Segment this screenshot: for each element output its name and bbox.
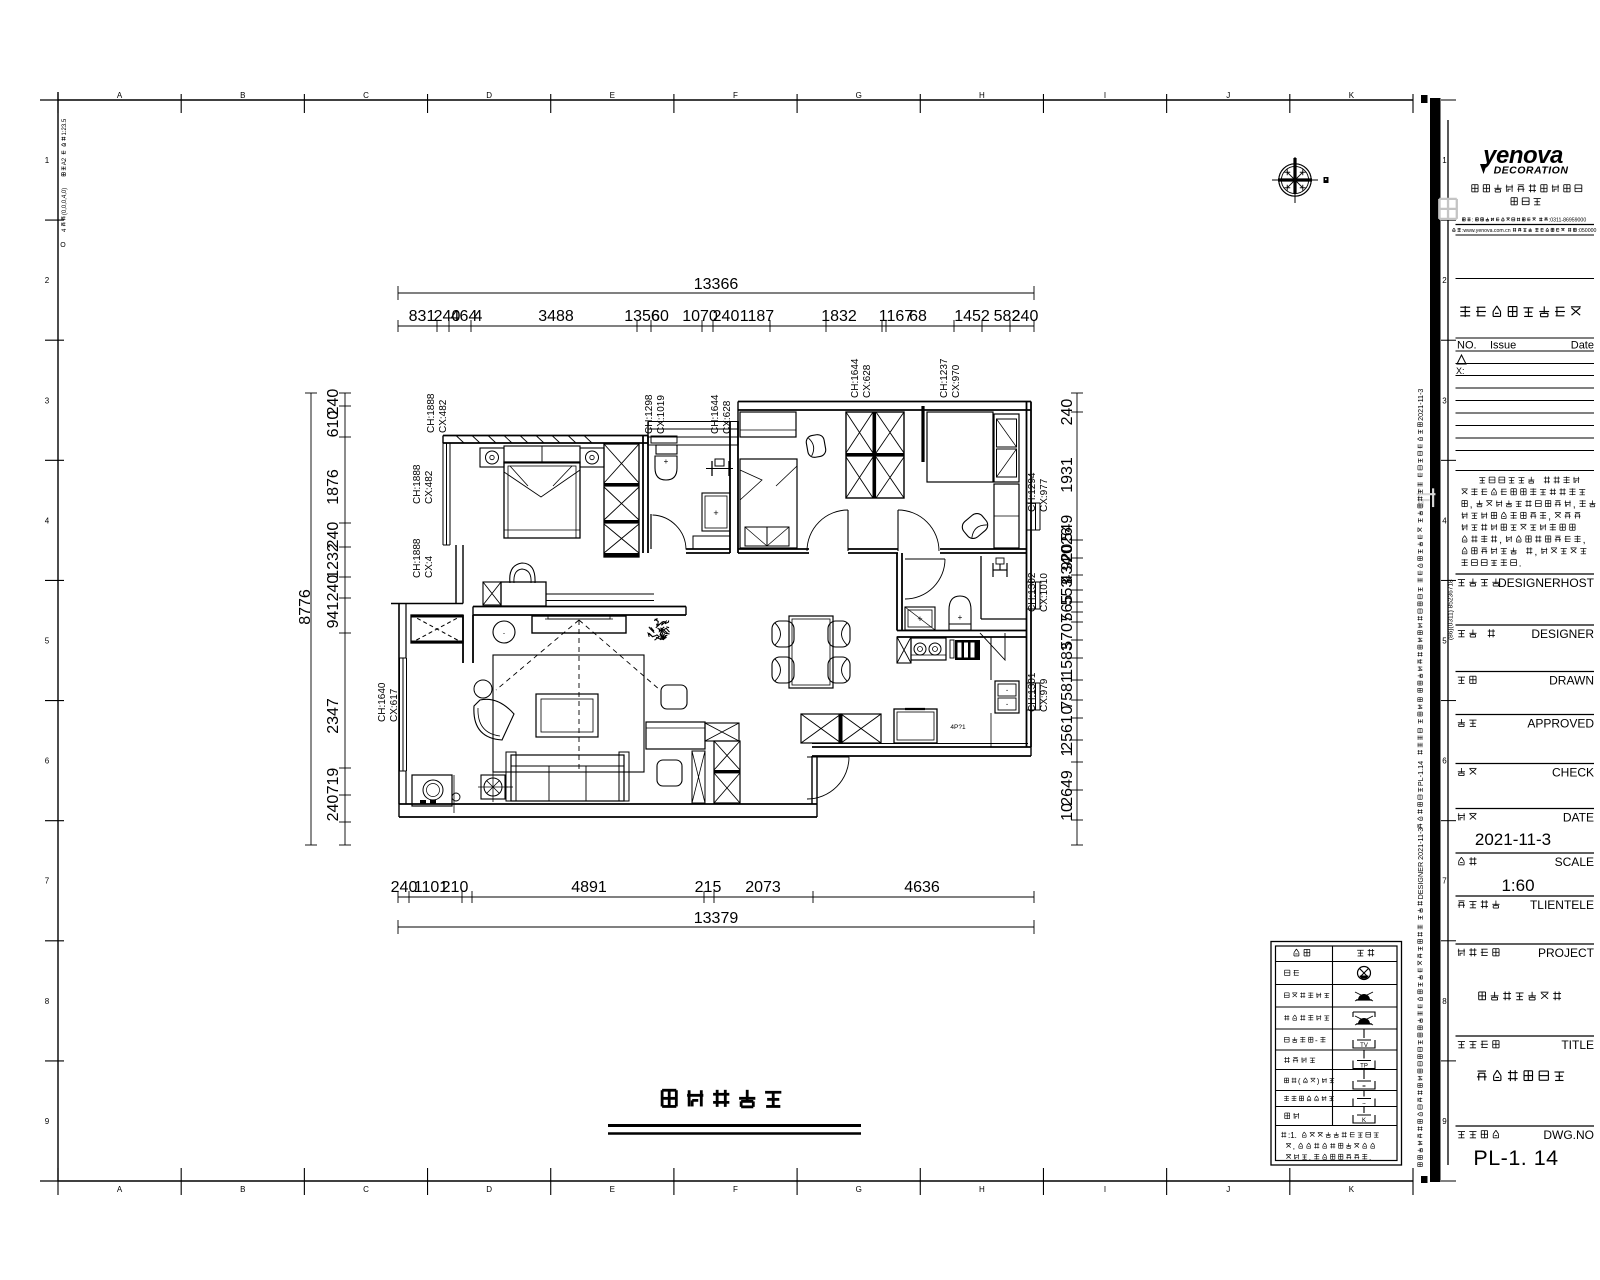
svg-text:TITLE: TITLE [1561,1038,1594,1052]
svg-text:CX:617: CX:617 [389,688,400,722]
svg-text:.: . [1519,559,1522,570]
svg-text:DESIGNERHOST: DESIGNERHOST [1498,576,1595,590]
svg-text:,: , [1548,511,1551,522]
svg-text:4P?1: 4P?1 [950,724,966,731]
svg-text:CH:1888: CH:1888 [412,464,423,504]
svg-text:13366: 13366 [694,276,739,293]
svg-text:DECORATION: DECORATION [1494,165,1569,177]
svg-text:7: 7 [45,877,50,886]
svg-text:240: 240 [1059,399,1076,426]
svg-text:DESIGNER: DESIGNER [1531,627,1594,641]
svg-text::www.yenova.com.cn: :www.yenova.com.cn [1462,228,1511,234]
svg-text:CX:970: CX:970 [951,364,962,398]
svg-text::1.: :1. [1288,1131,1297,1140]
svg-text:3488: 3488 [538,308,574,325]
svg-text:SCALE: SCALE [1555,855,1594,869]
svg-text:K: K [1349,1185,1355,1194]
svg-text:2649: 2649 [1059,770,1076,806]
svg-text:DATE: DATE [1563,811,1594,825]
svg-text:1452: 1452 [954,308,990,325]
svg-text:+: + [713,508,718,518]
svg-text:DWG.NO: DWG.NO [1543,1128,1594,1142]
svg-text:D: D [486,1185,492,1194]
svg-text:240: 240 [1012,308,1039,325]
svg-text:·: · [1005,685,1008,696]
svg-text:8: 8 [45,997,50,1006]
svg-text:J: J [1226,91,1230,100]
svg-text:-: - [1315,1036,1318,1045]
svg-text:1: 1 [45,156,50,165]
svg-text:CX:977: CX:977 [1039,478,1050,512]
svg-text:831: 831 [409,308,436,325]
svg-text:1583: 1583 [1059,642,1076,678]
svg-text:·: · [503,628,506,638]
svg-text:4: 4 [474,308,483,325]
svg-text:7581: 7581 [1059,674,1076,710]
svg-text:O: O [60,242,66,249]
svg-text:CH:1644: CH:1644 [710,394,721,434]
svg-text:X:: X: [1456,366,1465,376]
svg-text:PROJECT: PROJECT [1538,946,1595,960]
svg-text:C: C [363,1185,369,1194]
svg-text:1931: 1931 [1059,457,1076,493]
svg-text:,: , [1470,500,1473,511]
svg-text:2347: 2347 [325,698,342,734]
svg-text:4636: 4636 [904,879,940,896]
svg-text::: : [1472,218,1473,224]
svg-text:A: A [117,91,123,100]
svg-text:CH:1888: CH:1888 [412,538,423,578]
svg-text:8: 8 [1442,997,1447,1006]
svg-text:NO.: NO. [1457,340,1477,352]
svg-text:6: 6 [1442,757,1447,766]
svg-text:+: + [664,457,669,466]
svg-text:,: , [1309,1153,1311,1162]
svg-text:8776: 8776 [297,589,314,625]
svg-text:4: 4 [45,516,50,525]
svg-text:G: G [856,91,862,100]
svg-text::050000: :050000 [1578,228,1597,234]
svg-text:240: 240 [713,308,740,325]
svg-text:F: F [733,1185,738,1194]
svg-text:·: · [1005,699,1008,710]
svg-text:A2: A2 [62,157,68,165]
svg-text:9: 9 [45,1117,50,1126]
svg-text:CX:4: CX:4 [424,555,435,578]
svg-text:DRAWN: DRAWN [1549,674,1594,688]
svg-text:68: 68 [909,308,927,325]
svg-text:210: 210 [442,879,469,896]
svg-text:A: A [117,1185,123,1194]
svg-text:CH:1294: CH:1294 [1027,472,1038,512]
svg-text:(0,0,0,4,0): (0,0,0,4,0) [62,188,68,215]
svg-text:.: . [1369,1153,1371,1162]
svg-text:240: 240 [325,795,342,822]
svg-text:CX:628: CX:628 [862,364,873,398]
svg-text:2073: 2073 [745,879,781,896]
svg-text:PL-1. 14: PL-1. 14 [1473,1146,1558,1170]
svg-text:CH:1888: CH:1888 [426,393,437,433]
svg-text:4891: 4891 [571,879,607,896]
svg-text:I: I [1104,1185,1106,1194]
svg-text:5: 5 [45,637,50,646]
svg-text:1832: 1832 [821,308,857,325]
svg-text:719: 719 [325,768,342,795]
svg-text:2: 2 [1442,276,1447,285]
svg-text:9: 9 [1442,1117,1447,1126]
svg-text:2561: 2561 [1059,715,1076,751]
svg-text:TP: TP [1360,1064,1368,1070]
svg-text:CH:1640: CH:1640 [377,682,388,722]
svg-text:CX:1019: CX:1019 [656,395,667,434]
svg-text:2: 2 [45,276,50,285]
svg-text:CH:1237: CH:1237 [939,358,950,398]
svg-text:B: B [240,1185,245,1194]
svg-text:CX:482: CX:482 [438,399,449,433]
svg-text:1: 1 [1442,156,1447,165]
svg-text:C: C [363,91,369,100]
svg-text:,: , [1535,547,1538,558]
svg-text:E: E [610,91,615,100]
svg-text:610: 610 [325,411,342,438]
svg-text:1187: 1187 [740,308,775,325]
svg-text:G: G [856,1185,862,1194]
svg-text:60: 60 [651,308,669,325]
svg-text:6: 6 [45,757,50,766]
svg-text:F: F [733,91,738,100]
svg-text:TV: TV [1360,1043,1368,1049]
svg-text:D: D [486,91,492,100]
svg-text:+: + [917,614,922,624]
svg-text:13379: 13379 [694,910,739,927]
svg-text:APPROVED: APPROVED [1527,717,1594,731]
svg-text:,: , [1583,535,1586,546]
svg-text:10: 10 [1059,803,1076,821]
svg-text:H: H [979,91,985,100]
svg-text:J: J [1226,1185,1230,1194]
svg-text:1876: 1876 [325,469,342,505]
svg-text:CX:482: CX:482 [424,470,435,504]
svg-text:TLIENTELE: TLIENTELE [1530,898,1594,912]
svg-text:4: 4 [1442,516,1447,525]
svg-text:,: , [1499,535,1502,546]
svg-text:K: K [1349,91,1355,100]
svg-text::0311-86959000: :0311-86959000 [1549,218,1587,224]
svg-text:H: H [979,1185,985,1194]
svg-text:K: K [1362,1118,1366,1124]
svg-text:1: 1 [1059,747,1076,756]
svg-text:Date: Date [1571,340,1594,352]
svg-text:1232: 1232 [325,543,342,579]
svg-text:941: 941 [325,602,342,629]
svg-text:240: 240 [325,575,342,602]
svg-text:3: 3 [1442,396,1447,405]
svg-text:PL-1.14: PL-1.14 [1416,761,1425,786]
svg-text:B: B [240,91,245,100]
svg-text:DESIGNER 2021-11-3: DESIGNER 2021-11-3 [1416,828,1425,900]
svg-text:CH:1302: CH:1302 [1027,572,1038,612]
svg-text:1:60: 1:60 [1501,876,1534,895]
svg-text:215: 215 [695,879,722,896]
svg-text:CH:1644: CH:1644 [850,358,861,398]
svg-text:Issue: Issue [1490,340,1516,352]
svg-text:1:23.5: 1:23.5 [62,118,68,135]
svg-text:,: , [1293,1142,1295,1151]
svg-text:CX:628: CX:628 [722,400,733,434]
svg-text:2021-11-3: 2021-11-3 [1475,830,1551,849]
svg-text:,: , [1573,500,1576,511]
svg-text:CX:1010: CX:1010 [1039,573,1050,612]
svg-text:(86)(0311) 85236718: (86)(0311) 85236718 [1448,579,1455,640]
svg-text:CH:1298: CH:1298 [644,394,655,434]
svg-text:+: + [958,613,963,622]
svg-text:7: 7 [1442,877,1447,886]
svg-text:3: 3 [45,396,50,405]
svg-text:2021-11-3: 2021-11-3 [1416,389,1425,421]
svg-text:0: 0 [1059,705,1076,714]
svg-text:CHECK: CHECK [1552,766,1594,780]
svg-text:CH:1301: CH:1301 [1027,672,1038,712]
svg-text:E: E [610,1185,615,1194]
svg-text:=: = [1362,1084,1366,1090]
svg-text:CX:979: CX:979 [1039,678,1050,712]
svg-text:I: I [1104,91,1106,100]
